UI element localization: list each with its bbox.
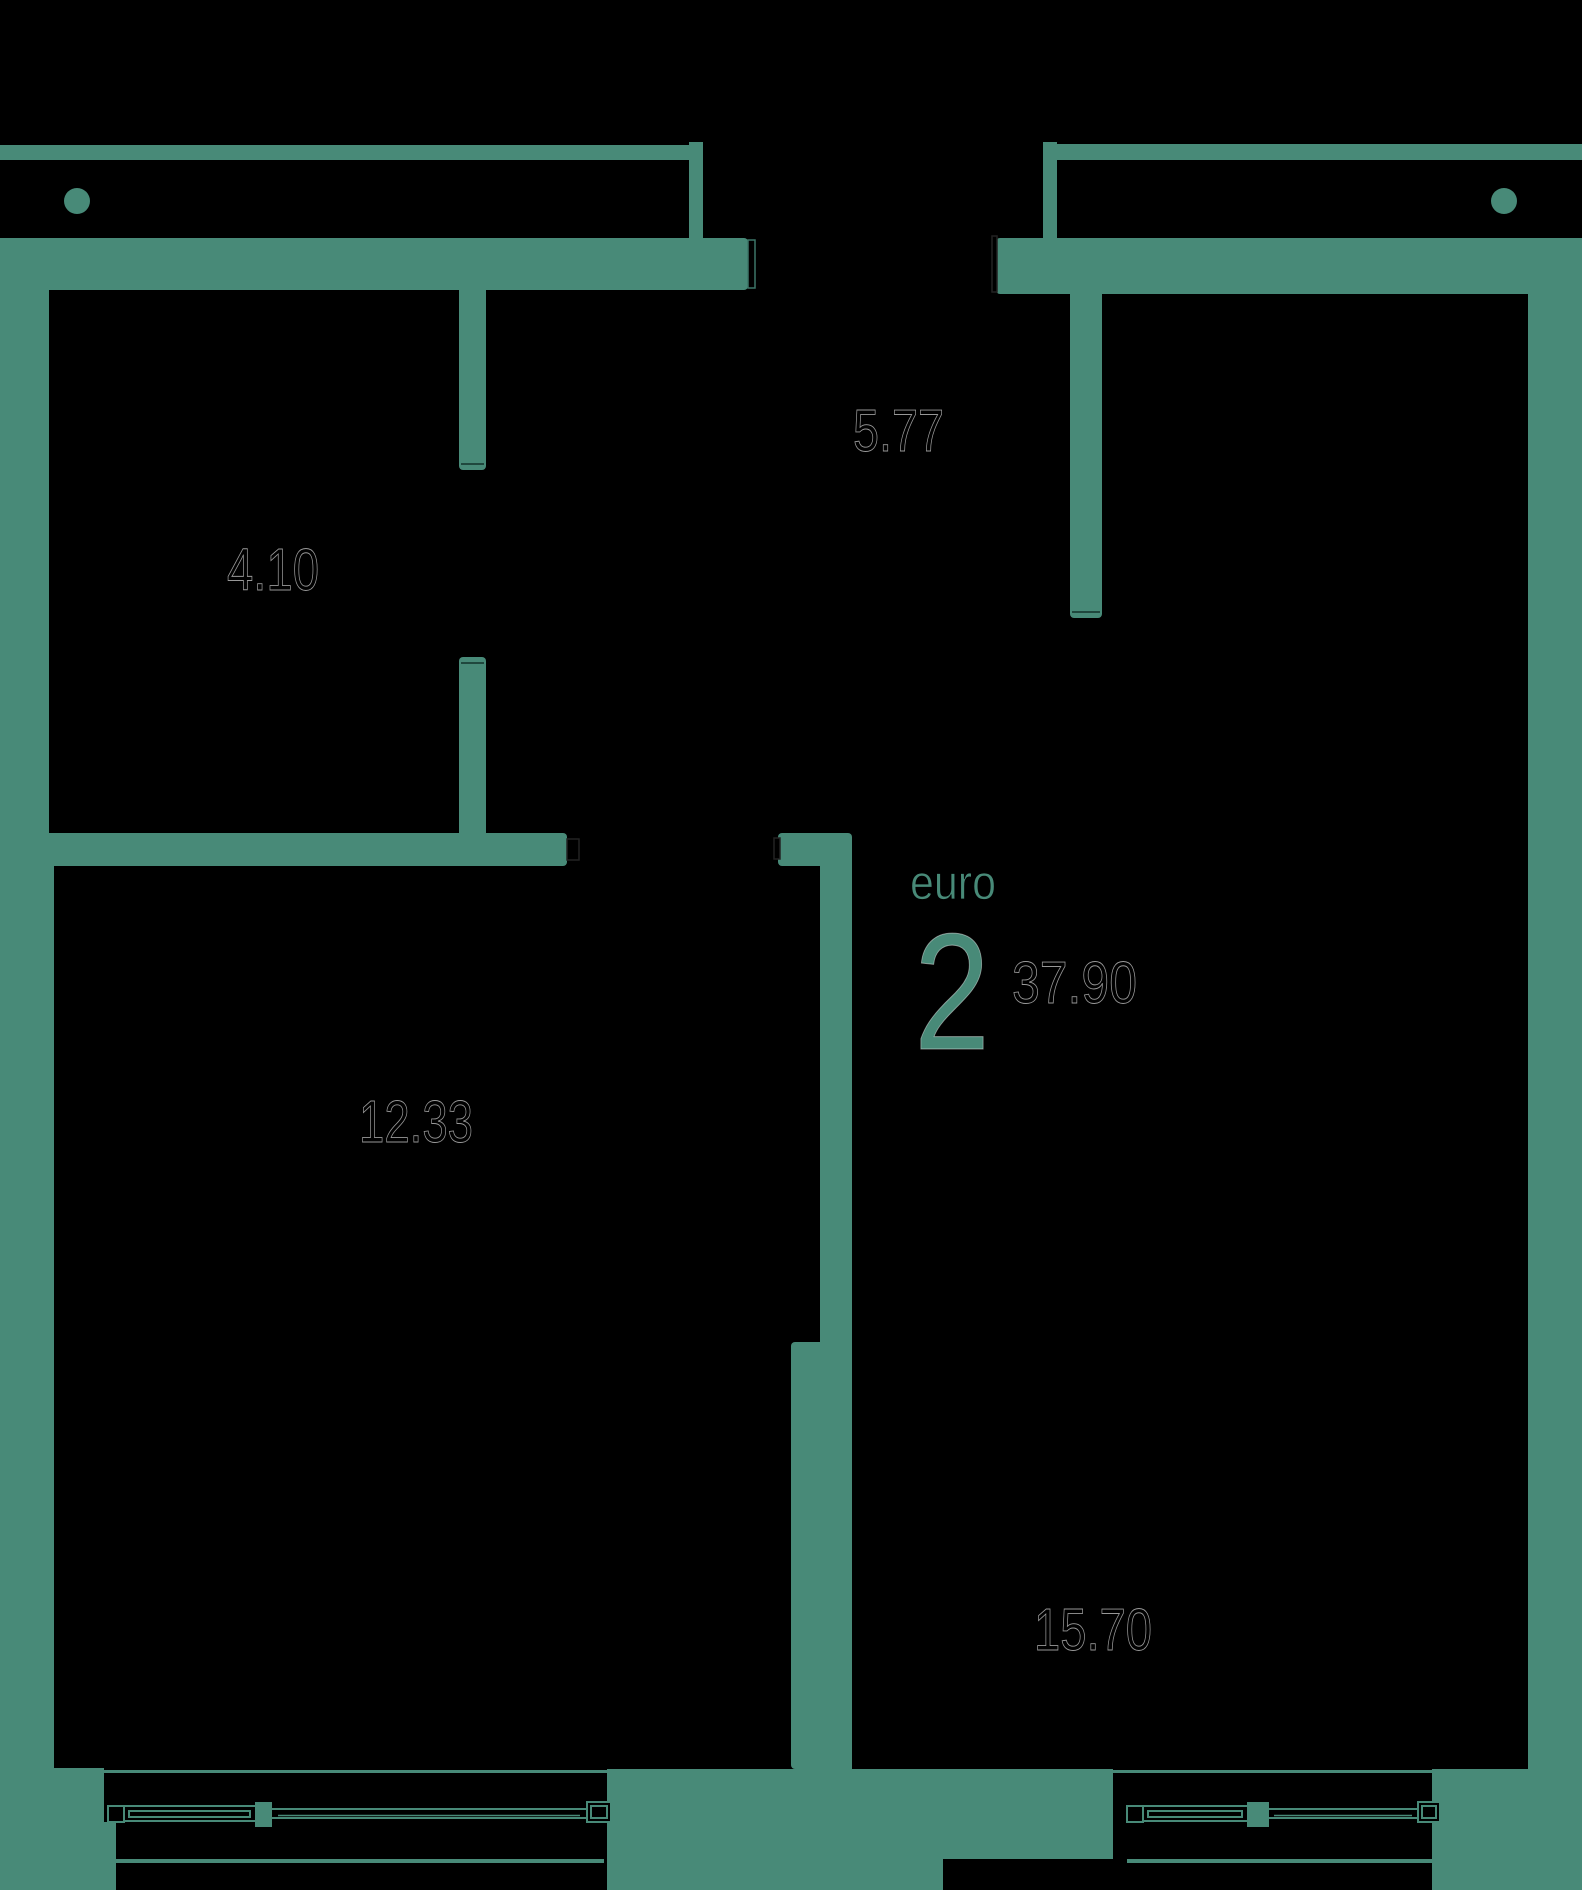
svg-text:4.10: 4.10	[227, 537, 319, 603]
svg-text:5.77: 5.77	[853, 398, 944, 464]
svg-text:12.33: 12.33	[359, 1089, 473, 1155]
svg-text:15.70: 15.70	[1034, 1597, 1152, 1663]
svg-text:37.90: 37.90	[1012, 950, 1137, 1016]
svg-text:2: 2	[914, 900, 990, 1085]
